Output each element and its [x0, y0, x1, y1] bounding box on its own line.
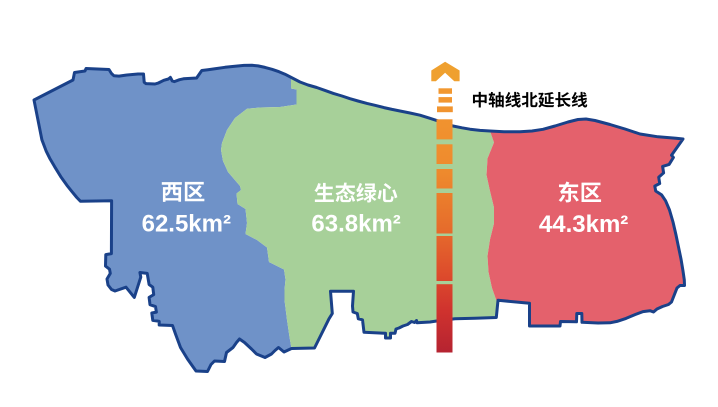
svg-text:44.3km²: 44.3km²	[539, 211, 628, 238]
svg-text:62.5km²: 62.5km²	[142, 211, 231, 238]
svg-text:63.8km²: 63.8km²	[311, 211, 400, 238]
